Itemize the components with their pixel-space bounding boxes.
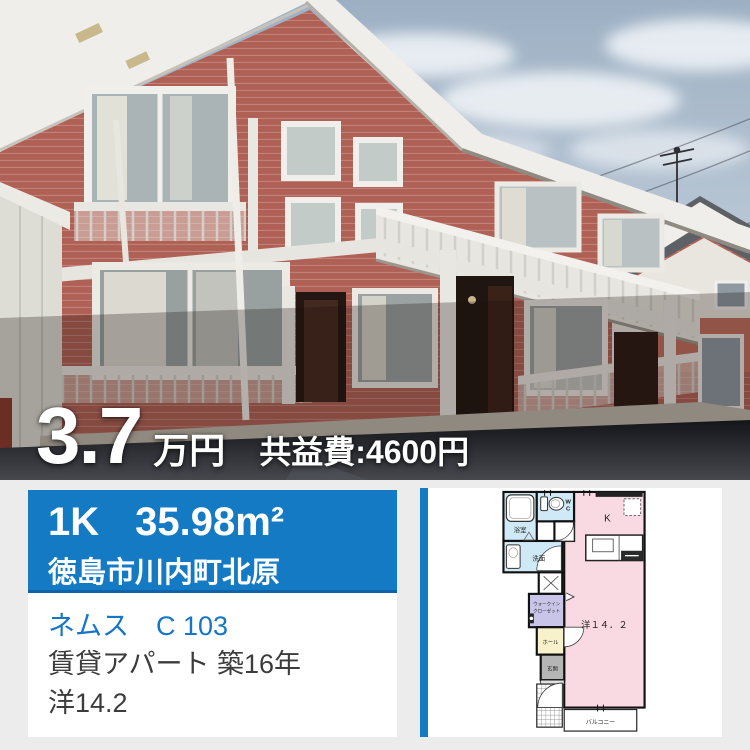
building-type-age: 賃貸アパート 築16年 bbox=[48, 645, 387, 683]
label-closet-2: クローゼット bbox=[533, 608, 560, 615]
detail-card: ネムス C 103 賃貸アパート 築16年 洋14.2 bbox=[28, 593, 397, 737]
layout-type: 1K bbox=[48, 500, 99, 544]
fridge-space bbox=[624, 499, 641, 516]
bathtub-icon bbox=[506, 495, 533, 521]
label-wc-c: C bbox=[566, 507, 571, 513]
maintenance-fee: 共益費:4600円 bbox=[259, 427, 469, 473]
label-wc-w: W bbox=[565, 500, 571, 506]
label-washroom: 洗面 bbox=[532, 554, 545, 563]
price-overlay: 3.7 万円 共益費:4600円 bbox=[36, 396, 469, 476]
floorplan-panel: 浴室 W C 洗面 K ウォークイン クローゼット ホール 玄関 洋１４．２ バ… bbox=[420, 488, 722, 737]
label-entrance: 玄関 bbox=[547, 664, 558, 672]
sink-icon bbox=[506, 545, 520, 569]
floorplan-image[interactable]: 浴室 W C 洗面 K ウォークイン クローゼット ホール 玄関 洋１４．２ バ… bbox=[500, 490, 650, 735]
property-photo[interactable]: 3.7 万円 共益費:4600円 bbox=[0, 0, 750, 480]
price-amount: 3.7 bbox=[36, 396, 141, 476]
kitchen-counter bbox=[586, 535, 643, 560]
price-unit: 万円 bbox=[153, 422, 225, 474]
label-closet-1: ウォークイン bbox=[533, 601, 560, 608]
summary-banner: 1K35.98m² 徳島市川内町北原 bbox=[28, 490, 397, 593]
room-summary: 洋14.2 bbox=[48, 684, 387, 722]
label-kitchen: K bbox=[604, 513, 611, 524]
label-hall: ホール bbox=[542, 639, 559, 646]
toilet-icon bbox=[541, 497, 564, 511]
label-main-room: 洋１４．２ bbox=[581, 619, 628, 630]
label-balcony: バルコニー bbox=[586, 719, 615, 726]
address: 徳島市川内町北原 bbox=[48, 549, 397, 591]
second-floor-window-large bbox=[74, 86, 246, 241]
label-bath: 浴室 bbox=[514, 525, 527, 534]
floor-area: 35.98m² bbox=[135, 500, 284, 544]
property-name-link[interactable]: ネムス C 103 bbox=[48, 607, 387, 645]
layout-area-line: 1K35.98m² bbox=[48, 498, 397, 546]
